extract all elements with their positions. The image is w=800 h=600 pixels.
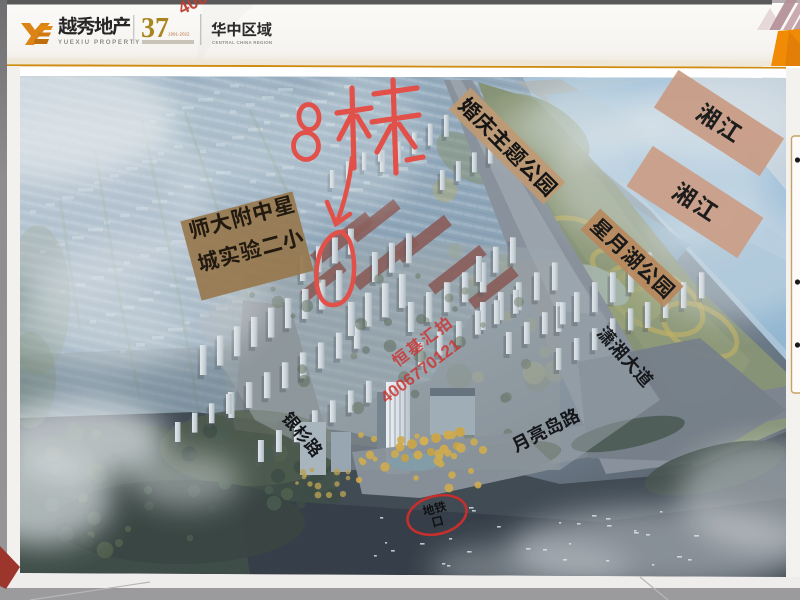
svg-text:37: 37 — [141, 13, 169, 44]
svg-text:1991-2022: 1991-2022 — [168, 32, 190, 37]
svg-text:YUEXIU PROPERTY: YUEXIU PROPERTY — [58, 39, 141, 46]
svg-text:CENTRAL CHINA REGION: CENTRAL CHINA REGION — [212, 40, 272, 45]
